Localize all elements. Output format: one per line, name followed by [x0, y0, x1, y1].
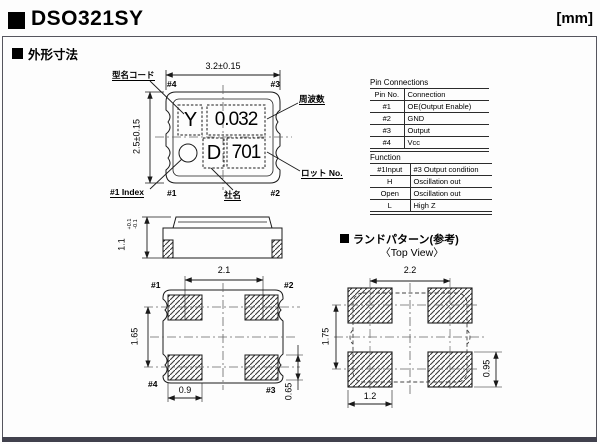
- bottom-pad-3: [245, 355, 278, 380]
- footer-bar: [2, 437, 597, 442]
- table-header-row: #1Input #3 Output condition: [370, 164, 492, 176]
- side-pad-right: [272, 240, 282, 258]
- pin-no-cell: #3: [370, 125, 404, 137]
- bottom-view-pad-width-dim: 0.9: [165, 385, 205, 396]
- table-row: #1 OE(Output Enable): [370, 101, 489, 113]
- input-cell: H: [370, 176, 410, 188]
- table-row: Open Oscillation out: [370, 188, 492, 200]
- pin-no-cell: #1: [370, 101, 404, 113]
- bottom-view-pitch-y-dim: 1.65: [130, 317, 141, 357]
- company-label: 社名: [224, 190, 241, 201]
- leader-frequency: [267, 103, 298, 119]
- top-view-width-dim: 3.2±0.15: [183, 61, 263, 72]
- pin-no-cell: #2: [370, 113, 404, 125]
- connection-cell: Output: [404, 125, 489, 137]
- land-pattern-drawing: [332, 278, 502, 408]
- leader-index: [150, 159, 182, 189]
- connection-cell: Vcc: [404, 137, 489, 149]
- side-view-height-dim: 1.1: [117, 230, 128, 260]
- table-row: #4 Vcc: [370, 137, 489, 149]
- output-cell: Oscillation out: [410, 176, 492, 188]
- land-pad-height-dim: 0.95: [482, 349, 493, 389]
- bottom-pad-2: [245, 295, 278, 320]
- model-code-label: 型名コード: [112, 70, 155, 81]
- table-row: #2 GND: [370, 113, 489, 125]
- marking-lot: 701: [227, 138, 265, 168]
- datasheet-page: DSO321SY [mm] 外形寸法: [0, 0, 600, 444]
- land-pitch-y-dim: 1.75: [321, 317, 332, 357]
- input-cell: Open: [370, 188, 410, 200]
- leader-lot: [267, 152, 300, 171]
- side-view-tolerance: +0.1 -0.1: [127, 211, 139, 237]
- land-pattern-subtitle: 〈Top View〉: [352, 245, 472, 260]
- table-row: #3 Output: [370, 125, 489, 137]
- side-pad-left: [163, 240, 173, 258]
- pin1-index-label: #1 Index: [110, 187, 144, 198]
- lot-label: ロット No.: [301, 168, 343, 179]
- col-header-connection: Connection: [404, 89, 489, 101]
- marking-frequency: 0.032: [207, 105, 265, 135]
- marking-model-code: Y: [178, 105, 202, 135]
- tolerance-lower: -0.1: [133, 211, 139, 237]
- pin-connections-title: Pin Connections: [370, 78, 489, 87]
- bottom-view-pad-height-dim: 0.65: [284, 372, 295, 412]
- output-cell: Oscillation out: [410, 188, 492, 200]
- bottom-view-drawing: [144, 276, 303, 402]
- marking-company: D: [203, 138, 224, 168]
- output-cell: High Z: [410, 200, 492, 212]
- table-header-row: Pin No. Connection: [370, 89, 489, 101]
- top-view-pin3-label: #3: [258, 79, 280, 90]
- col-header-pin-no: Pin No.: [370, 89, 404, 101]
- input-cell: L: [370, 200, 410, 212]
- top-view-pin4-label: #4: [167, 79, 176, 90]
- top-view-pin2-label: #2: [258, 188, 280, 199]
- table-row: H Oscillation out: [370, 176, 492, 188]
- leader-company: [211, 168, 233, 190]
- top-view-pin1-label: #1: [167, 188, 176, 199]
- lid-outline: [173, 217, 272, 228]
- connection-cell: OE(Output Enable): [404, 101, 489, 113]
- function-table: Function #1Input #3 Output condition H O…: [370, 153, 492, 215]
- land-pitch-x-dim: 2.2: [390, 265, 430, 276]
- pin-connections-table: Pin Connections Pin No. Connection #1 OE…: [370, 78, 489, 152]
- table-row: L High Z: [370, 200, 492, 212]
- land-pad-width-dim: 1.2: [350, 391, 390, 402]
- bottom-view-pitch-x-dim: 2.1: [204, 265, 244, 276]
- land-pattern-bullet-square: [340, 234, 349, 243]
- bottom-view-pin2-label: #2: [284, 280, 293, 291]
- top-view-height-dim: 2.5±0.15: [132, 97, 143, 177]
- col-header-input: #1Input: [370, 164, 410, 176]
- bottom-pad-4: [168, 355, 202, 380]
- bottom-view-pin3-label: #3: [266, 385, 275, 396]
- frequency-label: 周波数: [299, 94, 325, 105]
- body-outline: [163, 228, 282, 258]
- bottom-view-pin4-label: #4: [148, 379, 157, 390]
- function-title: Function: [370, 153, 492, 162]
- side-view-drawing: [142, 217, 282, 258]
- pin-no-cell: #4: [370, 137, 404, 149]
- line-art: [0, 0, 600, 444]
- bottom-view-pin1-label: #1: [151, 280, 160, 291]
- col-header-output-condition: #3 Output condition: [410, 164, 492, 176]
- connection-cell: GND: [404, 113, 489, 125]
